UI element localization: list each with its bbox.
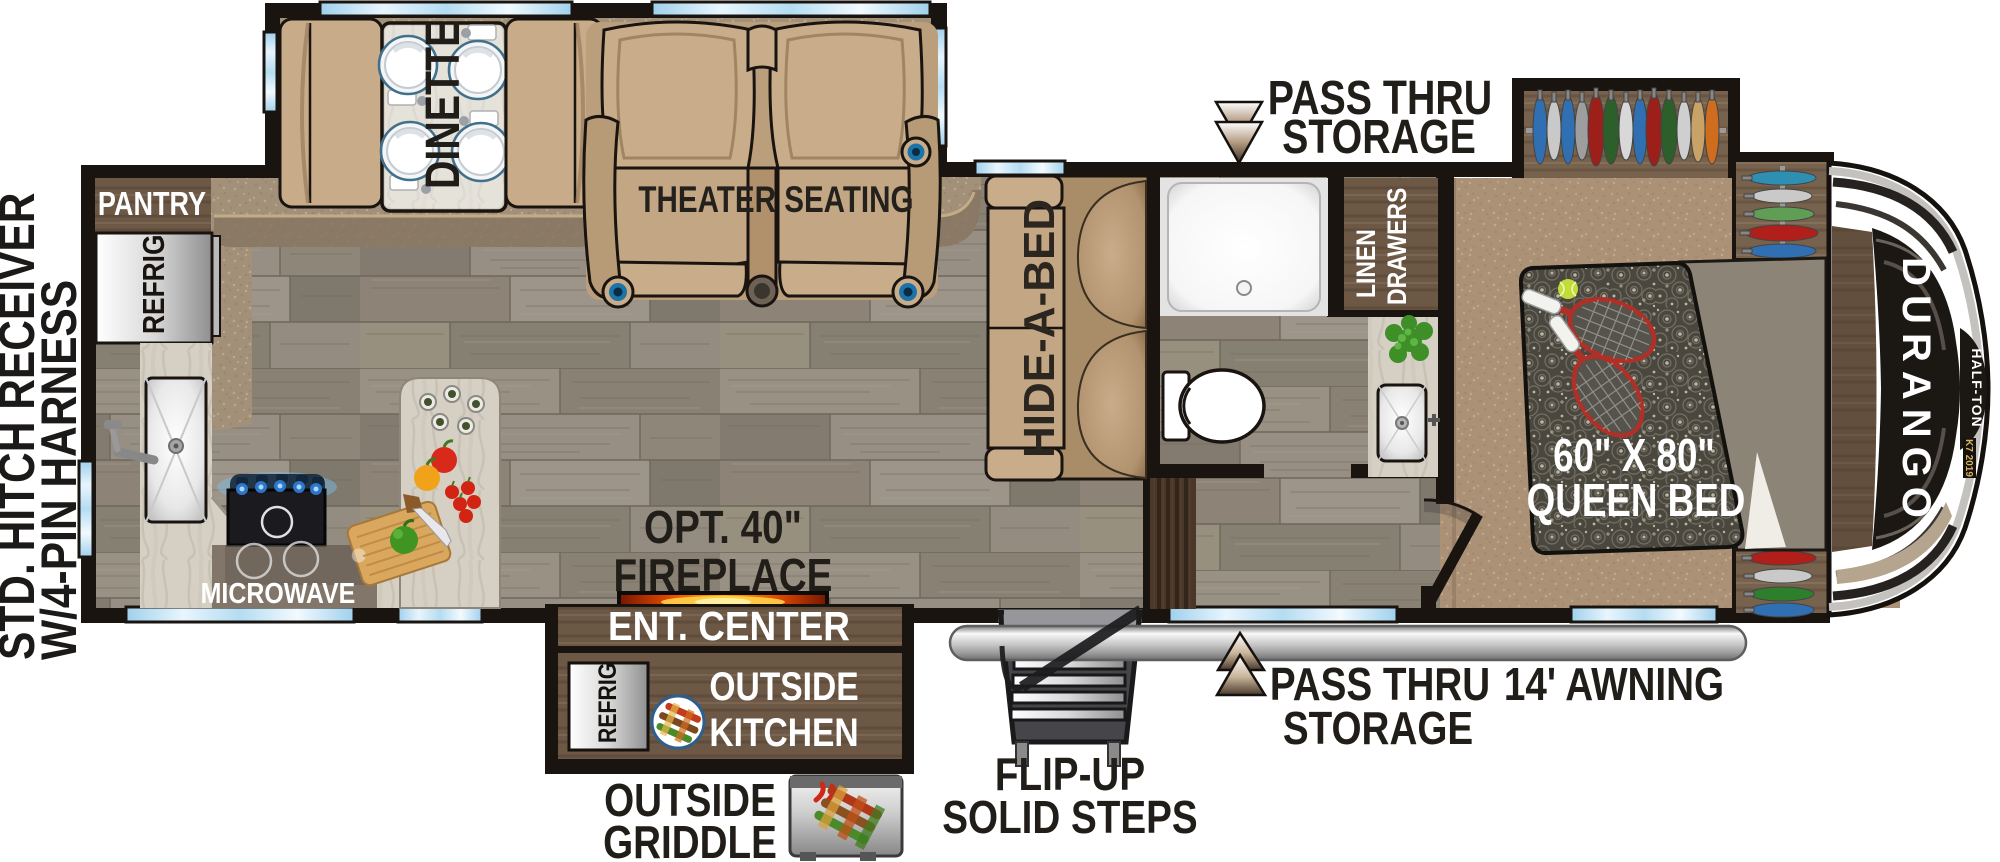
svg-text:THEATER SEATING: THEATER SEATING [638,180,913,221]
svg-text:DURANGO: DURANGO [1894,257,1938,527]
svg-text:HALF-TON: HALF-TON [1969,348,1985,427]
svg-text:DINETTE: DINETTE [416,21,470,189]
svg-text:HIDE-A-BED: HIDE-A-BED [1015,199,1064,458]
svg-text:MICROWAVE: MICROWAVE [201,577,356,609]
svg-text:DRAWERS: DRAWERS [1382,188,1412,305]
svg-text:STORAGE: STORAGE [1283,703,1473,754]
svg-text:STORAGE: STORAGE [1282,110,1476,164]
svg-text:ENT. CENTER: ENT. CENTER [608,604,850,649]
svg-text:KITCHEN: KITCHEN [709,710,858,754]
svg-text:14' AWNING: 14' AWNING [1504,659,1724,710]
svg-text:GRIDDLE: GRIDDLE [603,817,777,862]
svg-text:REFRIG: REFRIG [137,235,171,334]
svg-text:K7 2019: K7 2019 [1963,439,1974,477]
svg-text:LINEN: LINEN [1351,229,1381,298]
svg-text:OPT. 40": OPT. 40" [644,502,802,553]
svg-text:SOLID STEPS: SOLID STEPS [942,792,1197,843]
svg-text:REFRIG: REFRIG [593,663,621,743]
svg-text:PANTRY: PANTRY [98,187,206,223]
svg-text:QUEEN BED: QUEEN BED [1527,474,1746,526]
svg-text:OUTSIDE: OUTSIDE [709,664,858,708]
